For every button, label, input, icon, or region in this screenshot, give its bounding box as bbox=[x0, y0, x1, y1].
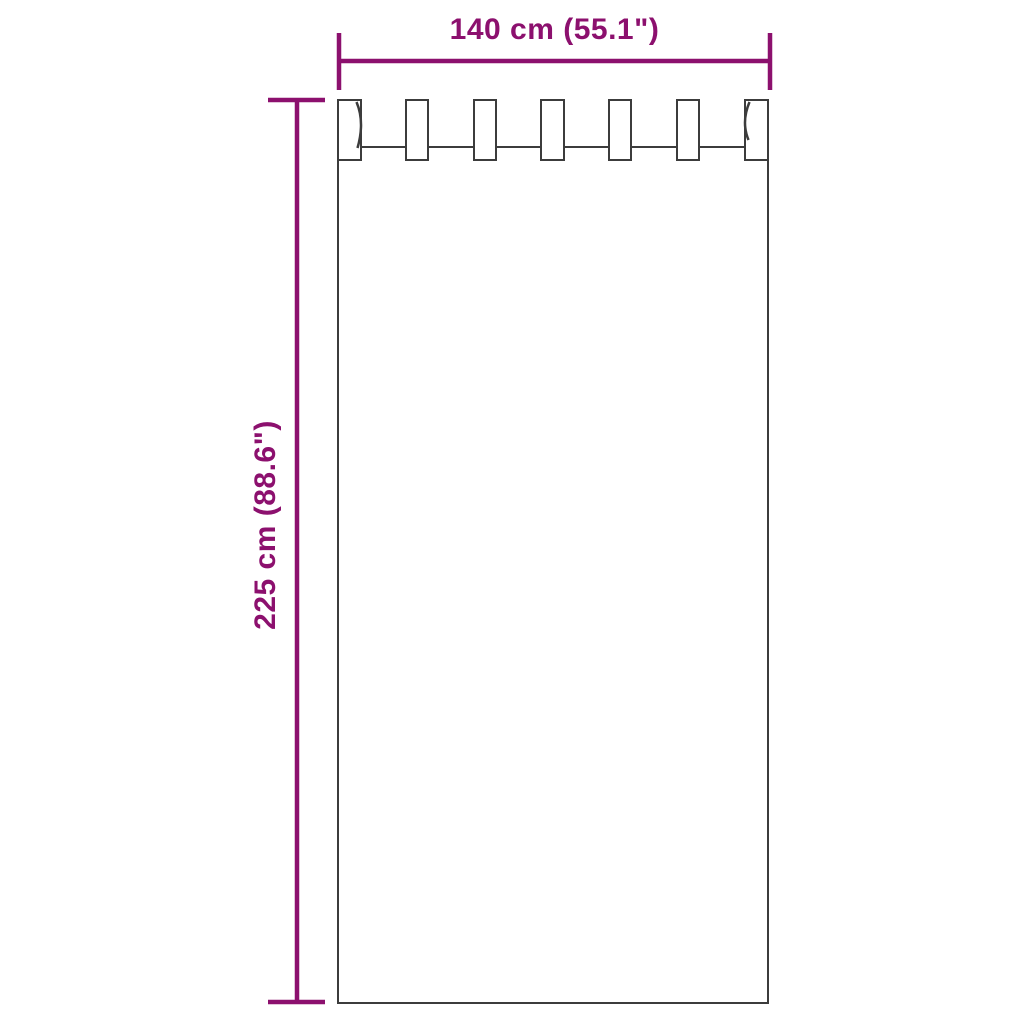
curtain-tab bbox=[745, 100, 768, 160]
curtain-tab bbox=[338, 100, 361, 160]
curtain-panel bbox=[338, 100, 768, 1003]
curtain-body bbox=[338, 147, 768, 1003]
curtain-line-art bbox=[0, 0, 1024, 1024]
dimension-diagram: 140 cm (55.1") 225 cm (88.6") bbox=[0, 0, 1024, 1024]
curtain-tab bbox=[406, 100, 428, 160]
width-dimension-label: 140 cm (55.1") bbox=[339, 12, 770, 48]
curtain-tab bbox=[609, 100, 631, 160]
curtain-tab bbox=[677, 100, 699, 160]
curtain-tab bbox=[474, 100, 496, 160]
curtain-tab bbox=[541, 100, 564, 160]
height-dimension-label: 225 cm (88.6") bbox=[248, 375, 284, 675]
